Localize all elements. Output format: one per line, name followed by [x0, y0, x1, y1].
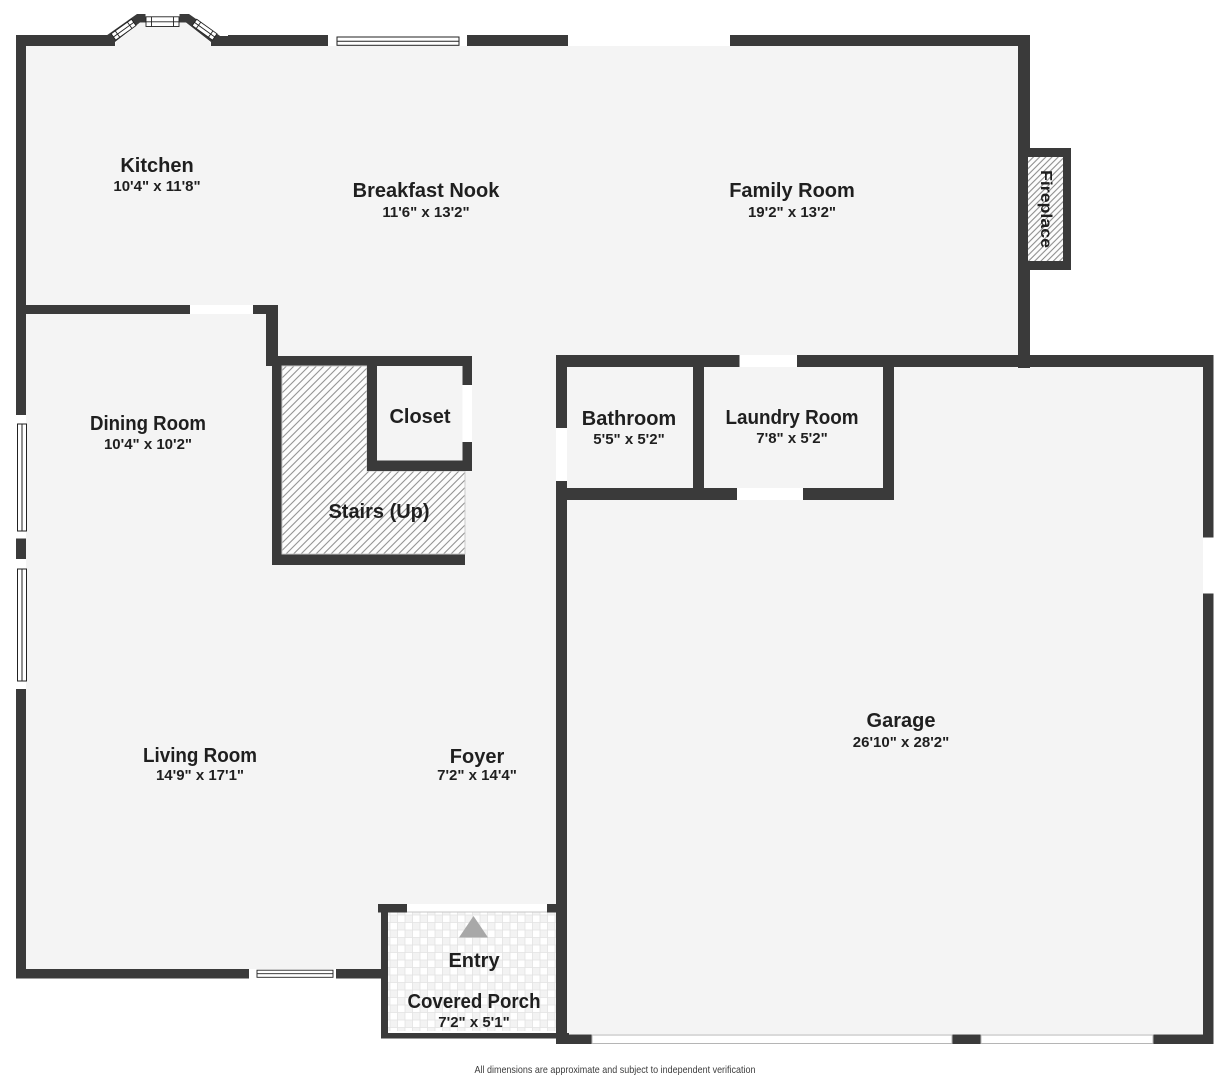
svg-text:Family Room: Family Room: [729, 180, 855, 202]
svg-text:Bathroom: Bathroom: [582, 408, 676, 430]
svg-text:7'2" x 5'1": 7'2" x 5'1": [438, 1014, 509, 1031]
svg-text:Kitchen: Kitchen: [120, 155, 193, 177]
svg-text:19'2" x 13'2": 19'2" x 13'2": [748, 204, 836, 221]
svg-text:5'5" x 5'2": 5'5" x 5'2": [593, 431, 664, 448]
svg-text:10'4" x 10'2": 10'4" x 10'2": [104, 436, 192, 453]
svg-text:Living Room: Living Room: [143, 745, 257, 767]
svg-text:7'8" x 5'2": 7'8" x 5'2": [756, 430, 827, 447]
svg-text:All dimensions are approximate: All dimensions are approximate and subje…: [475, 1064, 756, 1076]
svg-text:Laundry Room: Laundry Room: [726, 407, 859, 429]
svg-text:Dining Room: Dining Room: [90, 413, 206, 435]
svg-text:Entry: Entry: [448, 950, 500, 972]
svg-text:Breakfast Nook: Breakfast Nook: [353, 180, 501, 202]
svg-text:Closet: Closet: [389, 406, 450, 428]
svg-text:Garage: Garage: [867, 710, 936, 732]
svg-text:Stairs (Up): Stairs (Up): [328, 501, 429, 523]
svg-text:10'4" x 11'8": 10'4" x 11'8": [113, 178, 200, 195]
svg-text:26'10" x 28'2": 26'10" x 28'2": [853, 734, 949, 751]
svg-text:Fireplace: Fireplace: [1037, 170, 1054, 248]
svg-text:Covered Porch: Covered Porch: [408, 991, 541, 1013]
svg-text:Foyer: Foyer: [450, 746, 505, 768]
svg-text:14'9" x 17'1": 14'9" x 17'1": [156, 767, 244, 784]
svg-text:7'2" x 14'4": 7'2" x 14'4": [437, 767, 517, 784]
svg-text:11'6" x 13'2": 11'6" x 13'2": [382, 204, 469, 221]
